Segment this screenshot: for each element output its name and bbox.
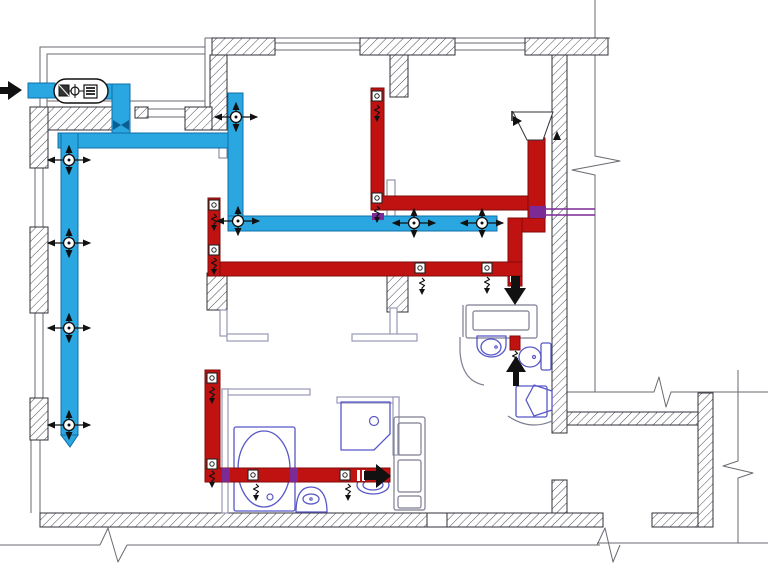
exhaust-grille-icon [207,373,217,383]
exhaust-grille-icon [482,263,492,273]
wall-segment [360,38,455,55]
diffuser-dot [68,242,71,245]
wall-segment [135,107,148,118]
wall-opening [427,513,447,527]
grille-circle [485,266,489,270]
arrow-shaft [511,276,520,290]
duct-crossing [290,468,298,482]
wall-segment [207,273,227,310]
duct-crossing [222,468,230,482]
partition-wall [220,310,227,336]
exhaust-duct [208,262,522,276]
air-handling-unit [54,79,108,103]
diffuser-dot [237,220,240,223]
diffuser-dot [68,159,71,162]
exhaust-grille-icon [209,200,219,210]
grille-circle [375,94,379,98]
wall-segment [552,55,567,433]
wall-segment [698,393,713,527]
diffuser-dot [68,424,71,427]
exhaust-duct [371,196,545,210]
wall-segment [30,107,48,168]
exhaust-grille-icon [415,263,425,273]
exhaust-grille-icon [372,193,382,203]
diffuser-dot [481,222,484,225]
grille-circle [212,203,216,207]
damper-tick [357,470,360,481]
wall-segment [30,398,48,440]
wall-segment [40,513,427,527]
wall-segment [30,227,48,313]
supply-duct [112,84,130,140]
duct-crossing [530,206,546,218]
grille-circle [210,462,214,466]
wall-segment [387,273,408,312]
grille-circle [212,248,216,252]
wall-segment [210,55,227,130]
grille-circle [375,196,379,200]
exhaust-grille-icon [340,470,350,480]
exhaust-grille-icon [372,91,382,101]
grille-circle [418,266,422,270]
supply-duct [28,83,55,98]
wall-segment [567,412,698,425]
exhaust-grille-icon [207,459,217,469]
exhaust-grille-icon [209,245,219,255]
exhaust-duct [510,336,520,350]
diffuser-dot [68,327,71,330]
diffuser-dot [235,116,238,119]
partition-wall [227,334,268,341]
wall-segment [390,55,408,97]
arrow-shaft [513,372,519,386]
floor-plan-page [0,0,768,569]
floor-plan-svg [0,0,768,569]
exhaust-grille-icon [248,470,258,480]
partition-wall [390,308,397,336]
diffuser-dot [413,222,416,225]
wall-segment [185,107,212,130]
wall-segment [652,513,698,527]
wall-segment [525,38,608,55]
supply-duct [58,133,228,148]
grille-circle [210,376,214,380]
supply-duct [61,133,78,435]
grille-circle [343,473,347,477]
grille-circle [251,473,255,477]
supply-duct [228,216,497,231]
partition-wall [222,389,310,395]
arrow-shaft [0,87,9,94]
wall-segment [212,38,275,55]
wall-segment [447,513,603,527]
partition-wall [222,389,228,513]
arrow-shaft [364,471,376,480]
partition-wall [352,334,417,341]
